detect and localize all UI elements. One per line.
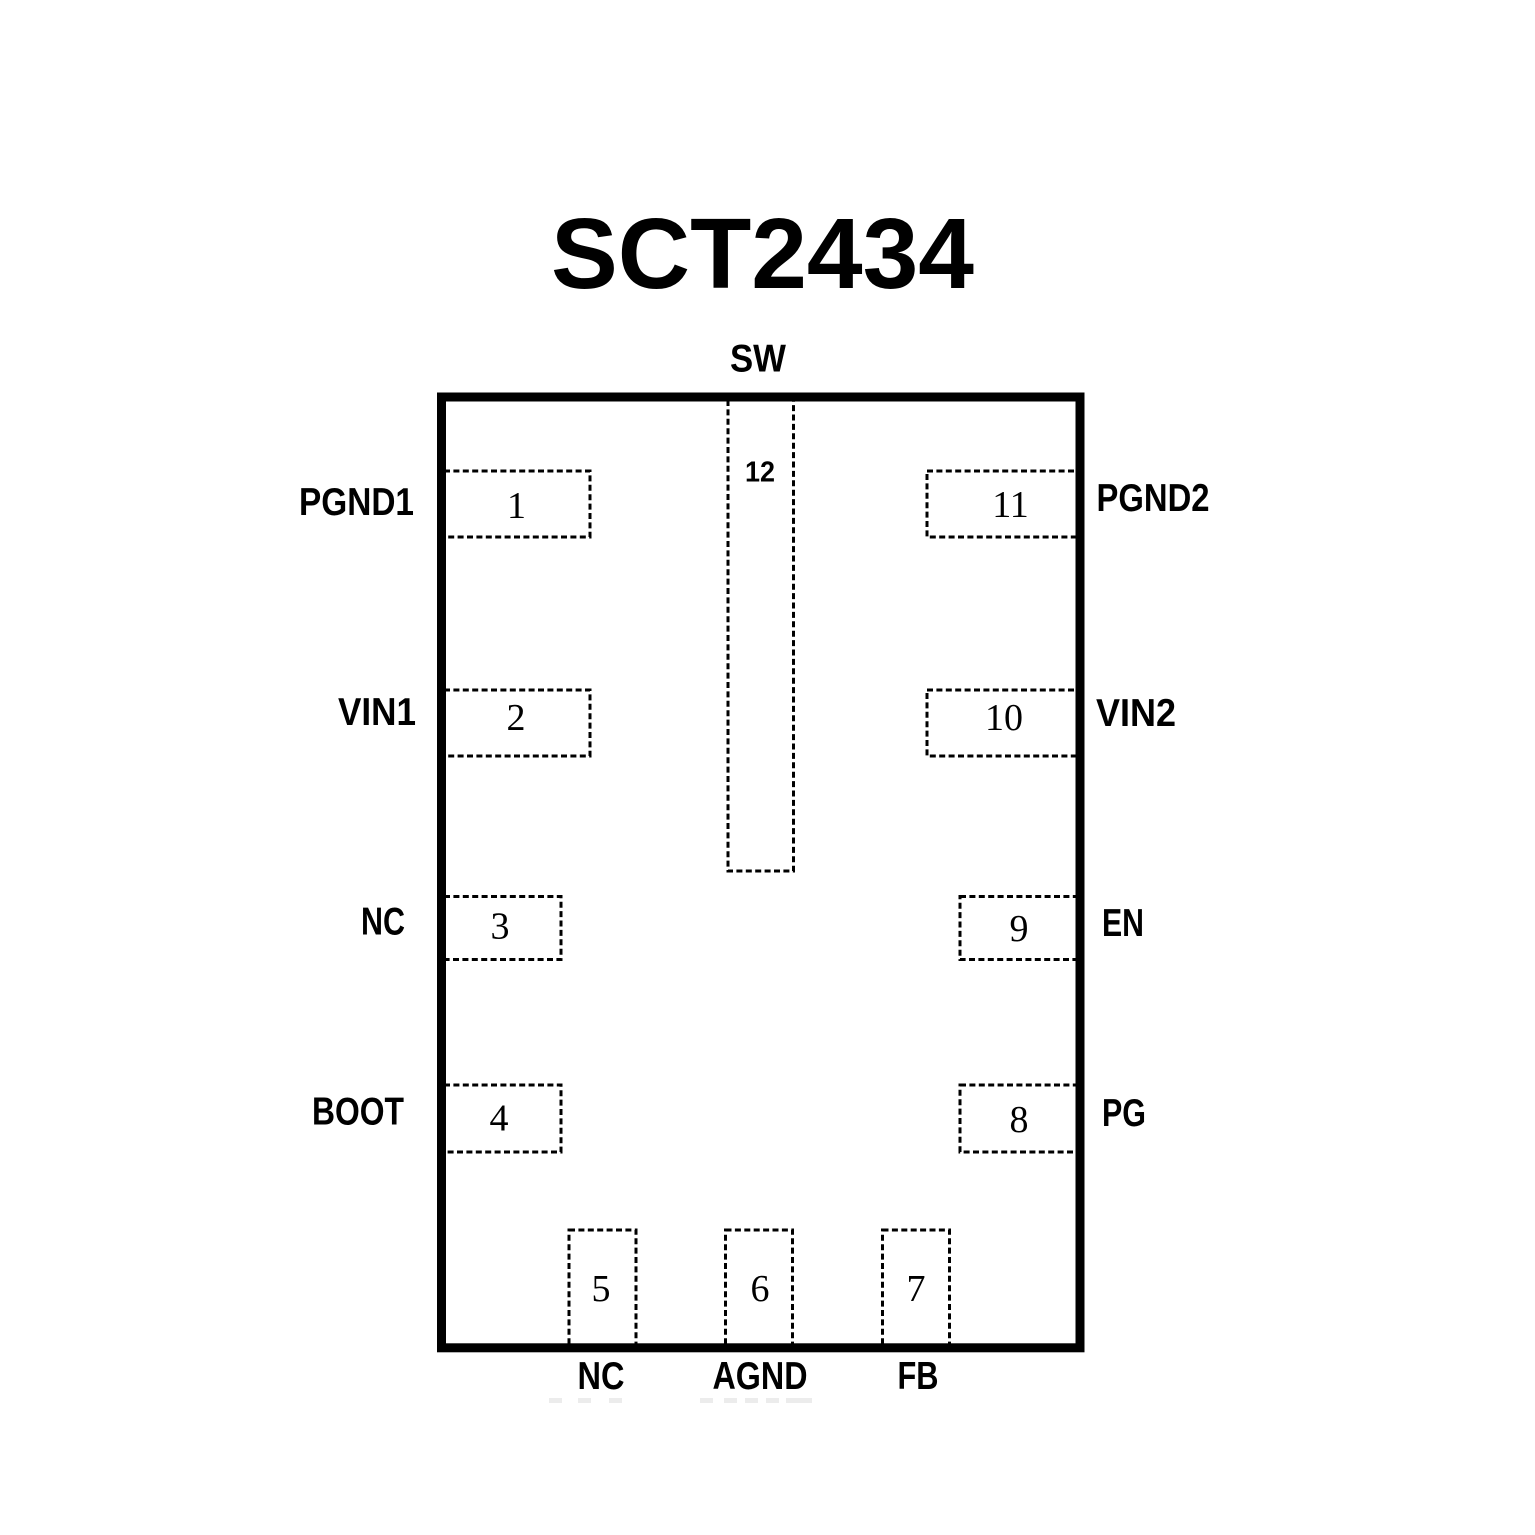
svg-text:PG: PG bbox=[1102, 1092, 1146, 1135]
svg-text:7: 7 bbox=[907, 1268, 926, 1310]
svg-text:9: 9 bbox=[1010, 908, 1029, 950]
svg-text:NC: NC bbox=[361, 901, 405, 944]
svg-text:SW: SW bbox=[730, 338, 786, 381]
svg-text:10: 10 bbox=[985, 697, 1023, 739]
svg-text:PGND2: PGND2 bbox=[1097, 477, 1210, 520]
svg-text:2: 2 bbox=[507, 697, 526, 739]
svg-text:8: 8 bbox=[1010, 1099, 1029, 1141]
svg-text:5: 5 bbox=[592, 1268, 611, 1310]
svg-text:3: 3 bbox=[491, 906, 510, 948]
svg-text:FB: FB bbox=[898, 1355, 939, 1398]
svg-text:NC: NC bbox=[578, 1355, 625, 1398]
svg-text:4: 4 bbox=[490, 1098, 509, 1140]
svg-text:VIN2: VIN2 bbox=[1096, 692, 1176, 735]
svg-text:12: 12 bbox=[745, 457, 775, 489]
svg-text:6: 6 bbox=[751, 1268, 770, 1310]
svg-text:VIN1: VIN1 bbox=[338, 691, 416, 734]
svg-text:BOOT: BOOT bbox=[312, 1091, 404, 1134]
svg-text:PGND1: PGND1 bbox=[299, 481, 414, 524]
svg-text:11: 11 bbox=[992, 484, 1029, 526]
svg-text:1: 1 bbox=[507, 485, 526, 527]
svg-text:EN: EN bbox=[1102, 902, 1144, 945]
svg-text:SCT2434: SCT2434 bbox=[551, 198, 974, 310]
svg-text:AGND: AGND bbox=[713, 1355, 808, 1398]
